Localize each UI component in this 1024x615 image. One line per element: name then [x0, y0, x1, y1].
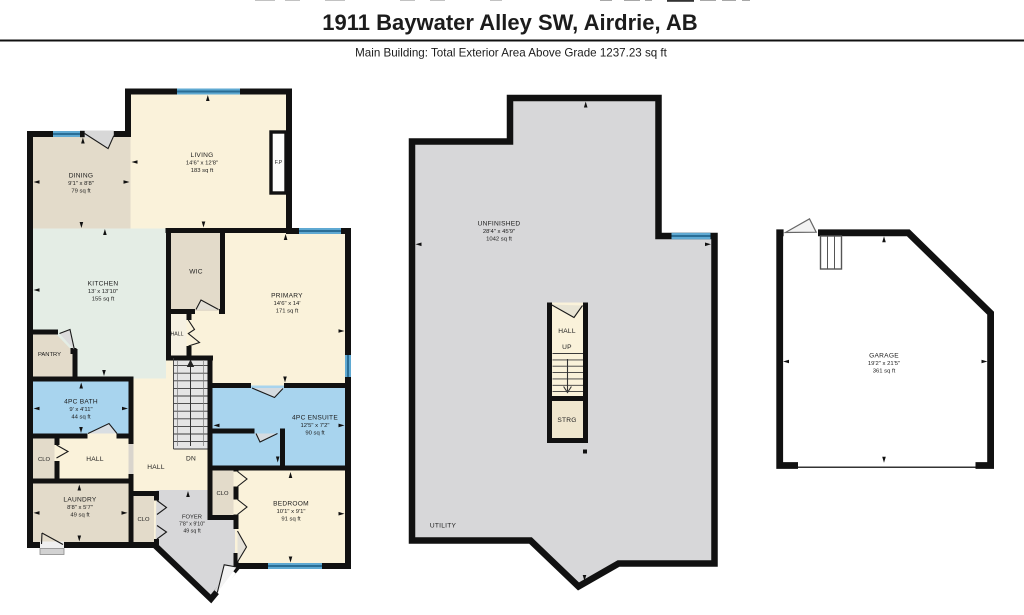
svg-text:HALL: HALL: [147, 464, 165, 471]
svg-text:HALL: HALL: [558, 328, 576, 335]
svg-text:9'1" x 8'8": 9'1" x 8'8": [68, 181, 94, 187]
svg-text:28'4" x 45'9": 28'4" x 45'9": [483, 229, 515, 235]
svg-text:171 sq ft: 171 sq ft: [276, 309, 299, 315]
svg-text:4PC BATH: 4PC BATH: [64, 399, 98, 406]
svg-text:HALL: HALL: [86, 456, 104, 463]
svg-text:155 sq ft: 155 sq ft: [92, 297, 115, 303]
svg-text:GARAGE: GARAGE: [869, 353, 899, 360]
svg-text:44 sq ft: 44 sq ft: [71, 415, 91, 421]
svg-text:1042 sq ft: 1042 sq ft: [486, 237, 512, 243]
svg-text:4PC ENSUITE: 4PC ENSUITE: [292, 415, 338, 422]
svg-text:8'8" x 5'7": 8'8" x 5'7": [67, 505, 93, 511]
svg-text:DN: DN: [186, 456, 196, 463]
svg-text:361 sq ft: 361 sq ft: [873, 369, 896, 375]
svg-text:14'6" x 12'8": 14'6" x 12'8": [186, 161, 218, 167]
svg-text:WIC: WIC: [189, 269, 203, 276]
svg-text:19'2" x 21'5": 19'2" x 21'5": [868, 361, 900, 367]
svg-text:LAUNDRY: LAUNDRY: [63, 497, 96, 504]
svg-text:79 sq ft: 79 sq ft: [71, 189, 91, 195]
svg-text:13' x 13'10": 13' x 13'10": [88, 289, 118, 295]
svg-text:1911 Baywater Alley SW, Airdri: 1911 Baywater Alley SW, Airdrie, AB: [322, 10, 697, 35]
svg-text:PANTRY: PANTRY: [38, 352, 61, 358]
svg-text:KITCHEN: KITCHEN: [88, 281, 119, 288]
svg-text:10'1" x 9'1": 10'1" x 9'1": [276, 509, 305, 515]
svg-text:F.P: F.P: [275, 160, 283, 166]
svg-text:UNFINISHED: UNFINISHED: [478, 221, 521, 228]
svg-text:UP: UP: [562, 344, 572, 351]
svg-text:91 sq ft: 91 sq ft: [281, 517, 301, 523]
svg-text:CLO: CLO: [38, 457, 50, 463]
svg-text:PRIMARY: PRIMARY: [271, 293, 303, 300]
svg-text:14'6" x 14': 14'6" x 14': [274, 301, 301, 307]
svg-text:49 sq ft: 49 sq ft: [183, 529, 201, 535]
svg-text:FOYER: FOYER: [182, 515, 202, 521]
svg-text:12'5" x 7'2": 12'5" x 7'2": [300, 423, 329, 429]
svg-text:90 sq ft: 90 sq ft: [305, 431, 325, 437]
svg-text:49 sq ft: 49 sq ft: [70, 513, 90, 519]
svg-text:BEDROOM: BEDROOM: [273, 501, 309, 508]
svg-text:LIVING: LIVING: [190, 152, 213, 159]
svg-text:7'8" x 9'10": 7'8" x 9'10": [179, 522, 205, 528]
svg-text:Main Building: Total Exterior: Main Building: Total Exterior Area Above…: [355, 47, 667, 60]
svg-text:9' x 4'11": 9' x 4'11": [69, 407, 92, 413]
svg-text:DINING: DINING: [69, 173, 94, 180]
svg-text:CLO: CLO: [217, 491, 229, 497]
svg-text:HALL: HALL: [171, 332, 184, 338]
svg-text:UTILITY: UTILITY: [430, 523, 457, 530]
svg-text:CLO: CLO: [138, 517, 150, 523]
svg-text:183 sq ft: 183 sq ft: [191, 168, 214, 174]
svg-text:STRG: STRG: [557, 417, 576, 424]
